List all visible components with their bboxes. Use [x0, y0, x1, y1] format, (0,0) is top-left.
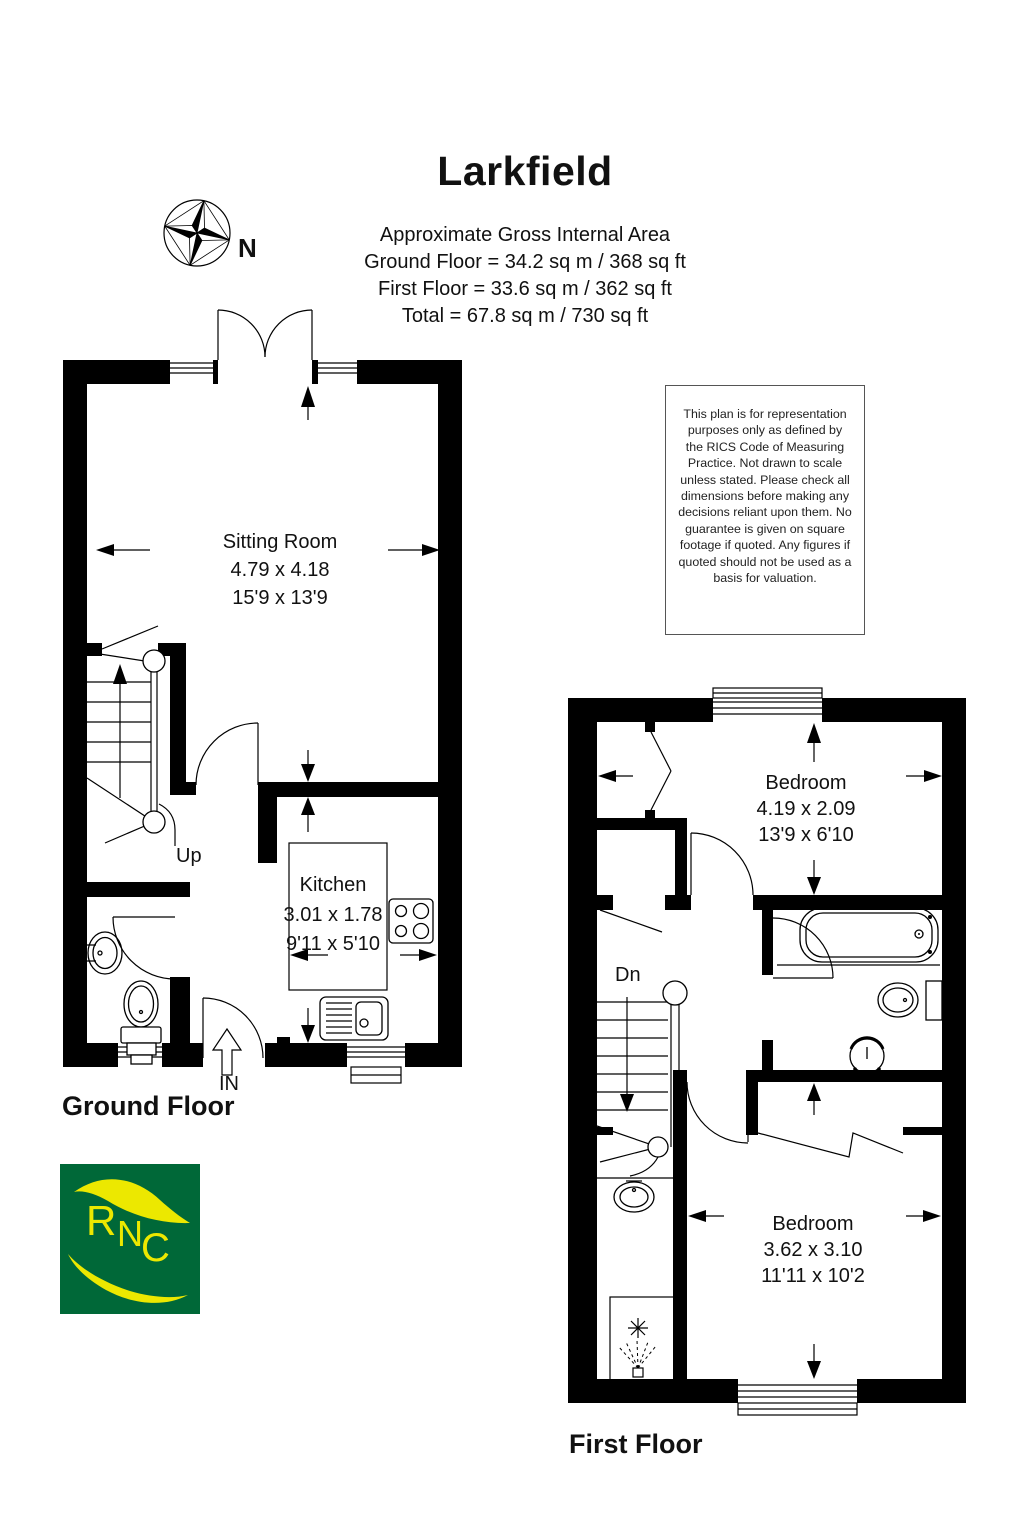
sitting-room-imperial: 15'9 x 13'9	[232, 587, 328, 609]
logo-letter-r: R	[86, 1197, 116, 1244]
wall-segment	[258, 782, 462, 797]
door-swing-arc	[687, 1082, 748, 1143]
bedroom1-imperial: 13'9 x 6'10	[758, 824, 854, 846]
door-leaf	[102, 626, 158, 649]
basin-bowl	[93, 938, 117, 969]
newel-post	[143, 811, 165, 833]
sink-drainer	[326, 1003, 352, 1033]
dim-arrow-head	[807, 877, 821, 895]
floorplan-page: { "title": "Larkfield", "area": { "headi…	[0, 0, 1020, 1530]
wall-segment	[63, 1043, 118, 1067]
door-swing-arc	[773, 918, 833, 978]
door-swing-arc	[691, 833, 753, 895]
dim-arrow-head	[422, 544, 440, 556]
compass-north-label: N	[238, 233, 257, 263]
ground-floor-plan: Sitting Room 4.79 x 4.18 15'9 x 13'9 Kit…	[55, 296, 475, 1096]
wall-segment	[665, 895, 691, 910]
bath-tap	[928, 915, 932, 919]
bedroom2-imperial: 11'11 x 10'2	[761, 1265, 865, 1287]
wardrobe-bifold-doors	[758, 1133, 903, 1157]
closet-door-leaf	[651, 771, 671, 810]
bath-drain-dot	[918, 933, 920, 935]
toilet-base	[127, 1043, 156, 1055]
wall-segment	[170, 977, 190, 1043]
bathtub	[800, 908, 938, 962]
dim-arrow-head	[807, 1083, 821, 1101]
entrance-in-arrow	[213, 1029, 241, 1075]
hob-burner	[414, 924, 429, 939]
dim-arrow-head	[301, 386, 315, 407]
bedroom2-metric: 3.62 x 3.10	[764, 1239, 863, 1261]
basin-detail	[853, 1067, 857, 1071]
toilet-detail	[904, 999, 907, 1002]
sink-drain	[360, 1019, 368, 1027]
hob-burner	[396, 906, 407, 917]
basin-drain	[98, 951, 102, 955]
page-title: Larkfield	[15, 148, 1020, 195]
wall-segment	[762, 910, 773, 975]
dim-arrow-head	[807, 723, 821, 743]
bathtub-inner	[806, 913, 932, 957]
dim-arrow-head	[807, 1361, 821, 1379]
shower-drain	[633, 1368, 643, 1377]
kitchen-metric: 3.01 x 1.78	[284, 904, 383, 926]
ff-bathroom-fixtures	[777, 908, 942, 1073]
dim-arrow-head	[598, 770, 616, 782]
wall-segment	[942, 698, 966, 1403]
gf-staircase	[87, 650, 175, 846]
logo-letter-c: C	[141, 1226, 170, 1270]
ff-shower-room-fixtures	[597, 1178, 676, 1380]
dim-arrow-head	[923, 1210, 941, 1222]
door-swing-arc	[196, 723, 258, 785]
newel-post	[143, 650, 165, 672]
newel-post	[648, 1137, 668, 1157]
toilet-base	[131, 1055, 152, 1064]
sitting-room-label: Sitting Room	[223, 531, 338, 553]
gf-windows	[118, 360, 405, 1083]
sitting-room-metric: 4.79 x 4.18	[231, 559, 330, 581]
wall-segment	[258, 797, 277, 863]
wall-segment	[597, 895, 613, 910]
rnc-logo: R N C	[60, 1164, 200, 1314]
basin-detail	[877, 1067, 881, 1071]
basin-drain	[633, 1189, 636, 1192]
wall-segment	[568, 698, 597, 1403]
wall-segment	[277, 1037, 290, 1067]
toilet-cistern	[121, 1027, 161, 1043]
wall-segment	[645, 722, 655, 732]
dim-arrow-head	[301, 797, 315, 815]
dim-arrow-head	[96, 544, 114, 556]
bedroom1-metric: 4.19 x 2.09	[757, 798, 856, 820]
hob-burner	[396, 926, 407, 937]
wall-segment	[312, 360, 318, 384]
wall-segment	[405, 1043, 462, 1067]
wall-segment	[568, 1379, 738, 1403]
toilet-seat	[883, 988, 913, 1012]
newel-post	[663, 981, 687, 1005]
door-swing-arc	[218, 310, 265, 357]
closet-door-leaf	[651, 732, 671, 771]
basin-bowl	[620, 1187, 648, 1207]
shower-head-icon	[628, 1318, 648, 1338]
wall-segment	[170, 656, 186, 782]
stair-arrow-head	[620, 1094, 634, 1112]
wall-segment	[87, 882, 190, 897]
sink-bowl	[356, 1002, 382, 1035]
wall-segment	[162, 1043, 203, 1067]
logo-letter-n: N	[117, 1213, 143, 1254]
gf-walls	[63, 360, 462, 1067]
stairs-dn-label: Dn	[615, 964, 641, 986]
dim-arrow-head	[301, 1025, 315, 1043]
stair-arrow-head	[113, 664, 127, 684]
bedroom2-label: Bedroom	[772, 1213, 853, 1235]
wall-segment	[857, 1379, 966, 1403]
wall-segment	[746, 1070, 942, 1082]
stair-curve	[630, 1157, 658, 1176]
door-swing-arc	[265, 310, 312, 357]
kitchen-imperial: 9'11 x 5'10	[286, 933, 380, 955]
compass-star	[165, 201, 230, 266]
wall-segment	[597, 818, 687, 830]
wall-segment	[675, 830, 687, 898]
toilet-cistern	[926, 981, 942, 1020]
wall-segment	[673, 1070, 687, 1382]
bedroom1-label: Bedroom	[765, 772, 846, 794]
stairs-up-label: Up	[176, 845, 202, 867]
shower-spray	[618, 1340, 656, 1368]
ground-floor-label: Ground Floor	[62, 1091, 234, 1122]
wall-segment	[63, 360, 87, 1067]
first-floor-plan: Bedroom 4.19 x 2.09 13'9 x 6'10 Bedroom …	[558, 680, 973, 1420]
first-floor-label: First Floor	[569, 1429, 703, 1460]
gf-dimension-arrows	[96, 386, 440, 1043]
wall-segment	[213, 360, 218, 384]
compass-rose-icon: N	[155, 190, 267, 282]
door-swing-arc	[113, 917, 175, 979]
disclaimer-text: This plan is for representation purposes…	[678, 407, 852, 585]
wall-segment	[170, 782, 196, 795]
dim-arrow-head	[301, 764, 315, 782]
bath-tap	[928, 950, 932, 954]
dim-arrow-head	[688, 1210, 706, 1222]
wall-segment	[762, 1040, 773, 1070]
wall-segment	[438, 360, 462, 1067]
dim-arrow-head	[419, 949, 437, 961]
closet-door-leaf	[600, 910, 662, 932]
gf-doors	[102, 310, 312, 1058]
wall-segment	[903, 1127, 942, 1135]
kitchen-label: Kitchen	[300, 874, 367, 896]
dim-arrow-head	[924, 770, 942, 782]
disclaimer-box: This plan is for representation purposes…	[665, 385, 865, 635]
hob-burner	[414, 904, 429, 919]
